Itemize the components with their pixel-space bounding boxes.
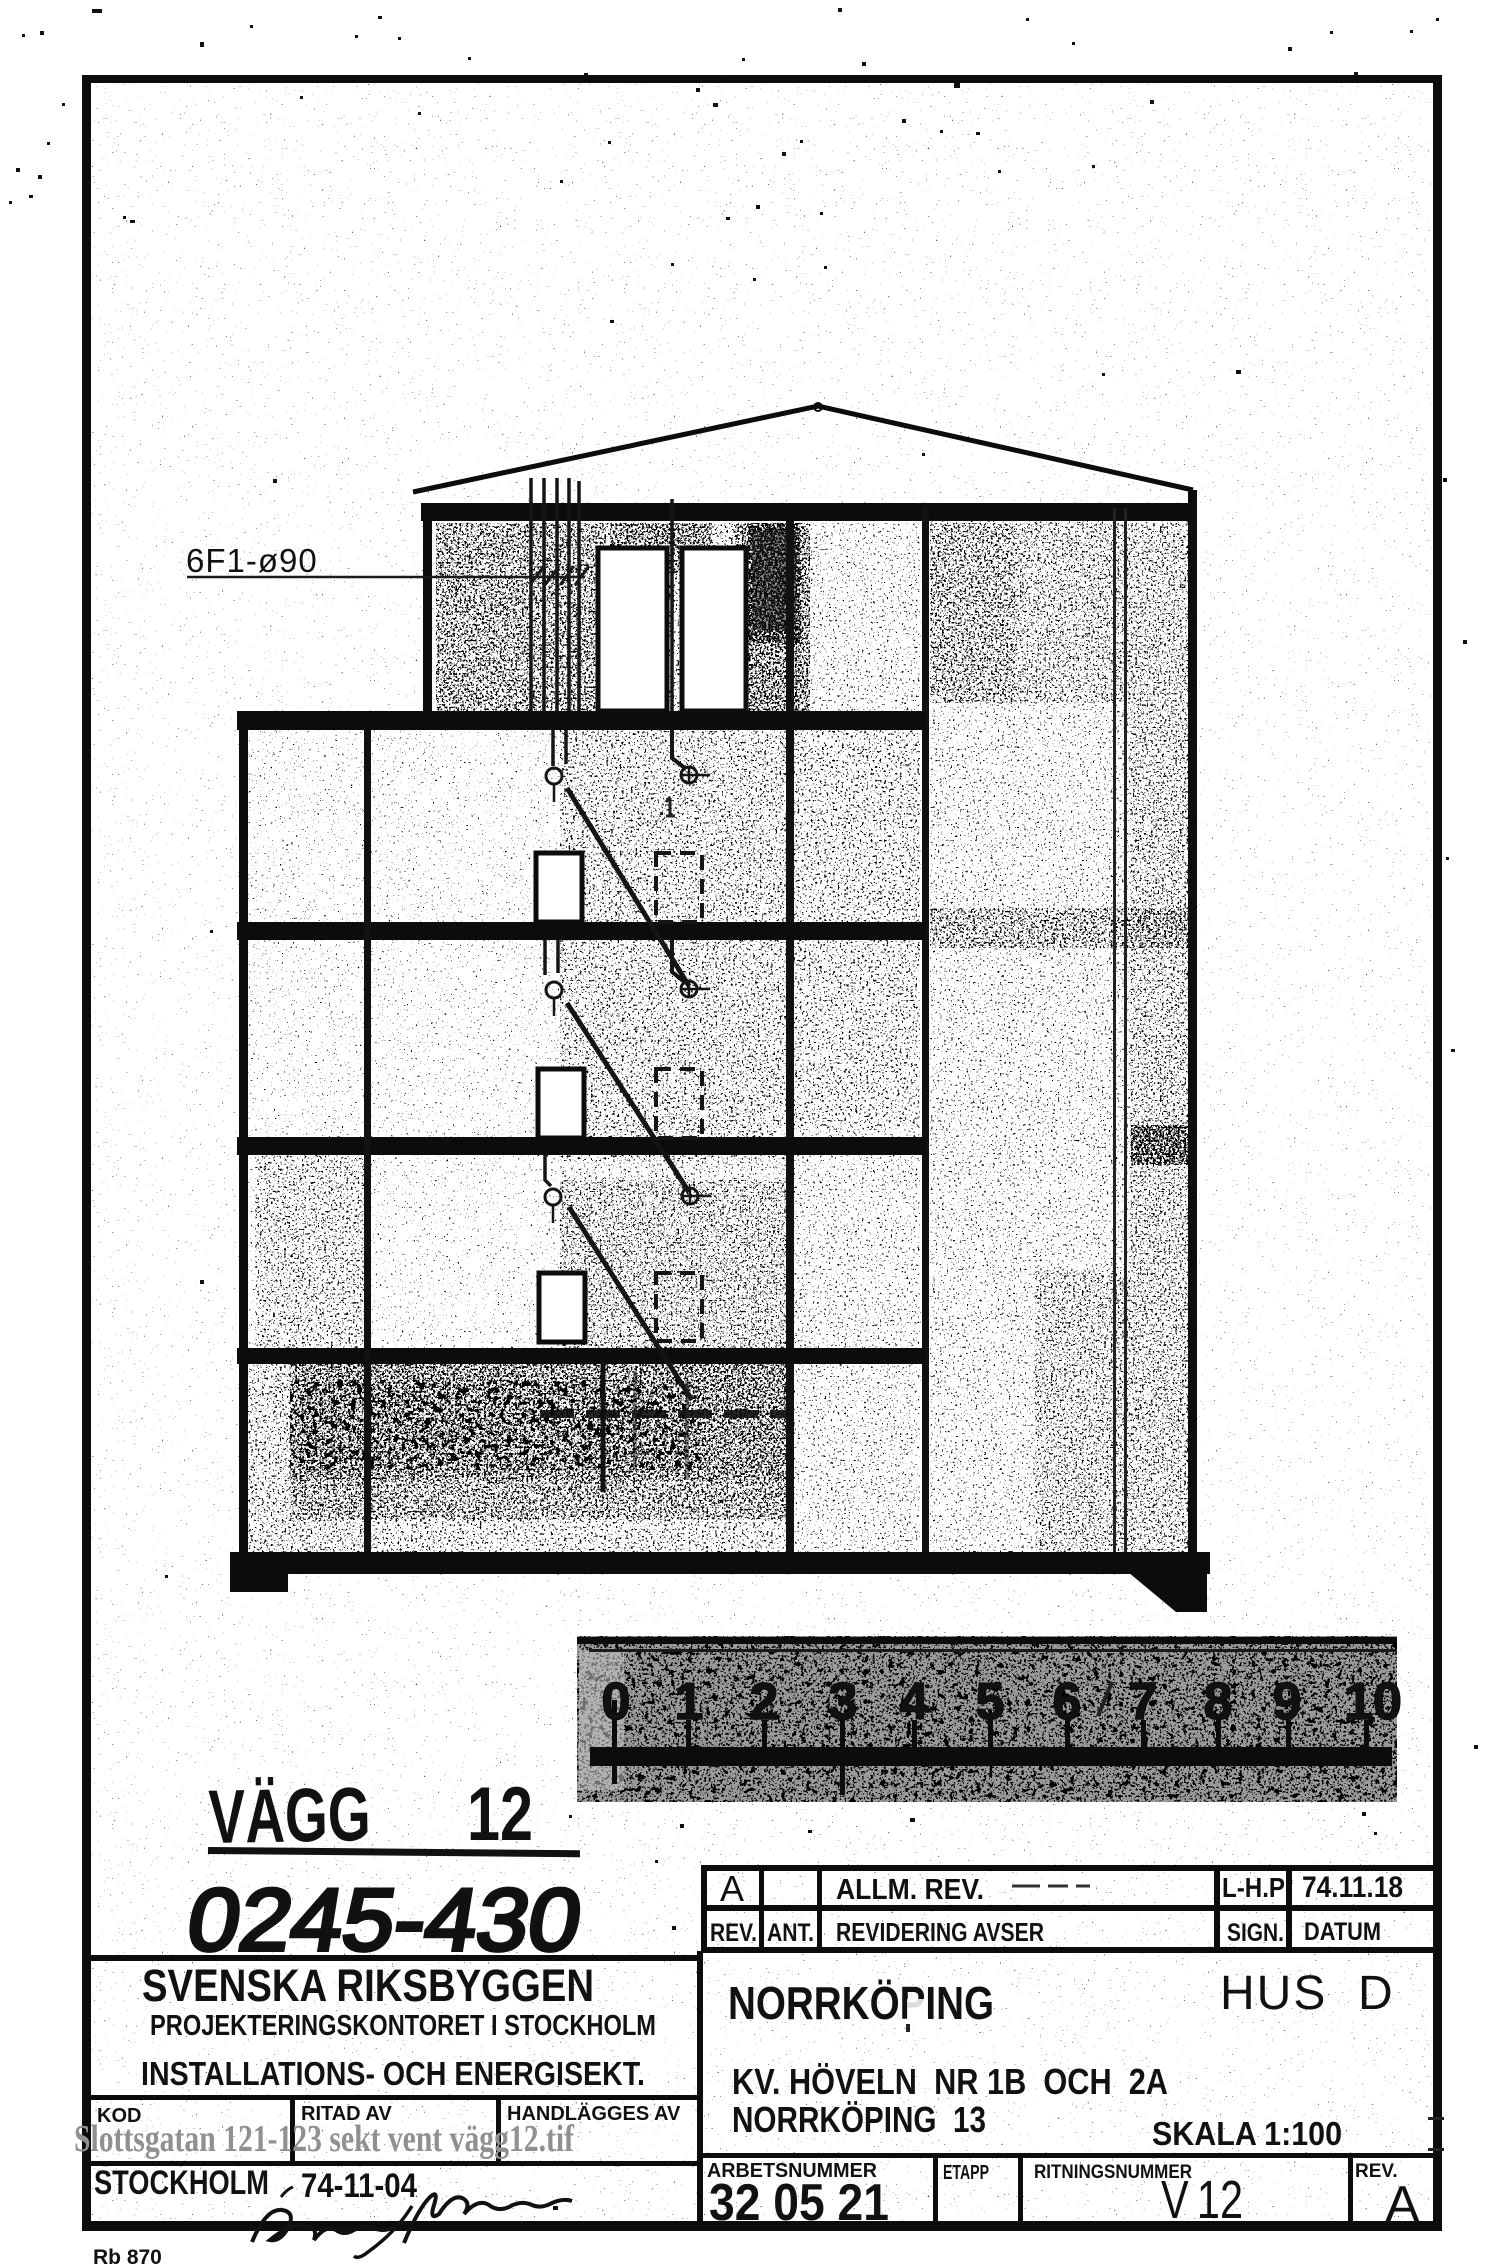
svg-text:ANT.: ANT. bbox=[767, 1919, 814, 1947]
svg-text:ALLM. REV.: ALLM. REV. bbox=[836, 1874, 984, 1906]
svg-text:7: 7 bbox=[1129, 1673, 1158, 1731]
svg-text:REVIDERING AVSER: REVIDERING AVSER bbox=[836, 1917, 1044, 1947]
svg-text:INSTALLATIONS- OCH ENERGISEKT.: INSTALLATIONS- OCH ENERGISEKT. bbox=[141, 2055, 645, 2092]
svg-text:PROJEKTERINGSKONTORET I STOCKH: PROJEKTERINGSKONTORET I STOCKHOLM bbox=[150, 2010, 656, 2042]
svg-text:9: 9 bbox=[1273, 1673, 1302, 1731]
svg-text:Rb 870: Rb 870 bbox=[93, 2246, 162, 2268]
svg-text:HUS D: HUS D bbox=[1220, 1967, 1395, 2020]
svg-text:0: 0 bbox=[602, 1673, 631, 1731]
svg-text:NORRKÖPING: NORRKÖPING bbox=[728, 1977, 994, 2029]
svg-text:STOCKHOLM: STOCKHOLM bbox=[94, 2164, 269, 2202]
svg-text:A: A bbox=[1385, 2176, 1420, 2234]
svg-text:5: 5 bbox=[976, 1673, 1005, 1731]
svg-text:74.11.18: 74.11.18 bbox=[1302, 1871, 1403, 1904]
svg-text:6: 6 bbox=[1053, 1673, 1082, 1731]
svg-text:VÄGG: VÄGG bbox=[208, 1772, 371, 1860]
svg-text:A: A bbox=[720, 1868, 744, 1909]
svg-text:6F1-ø90: 6F1-ø90 bbox=[186, 542, 318, 579]
svg-text:2: 2 bbox=[750, 1673, 779, 1731]
svg-text:3: 3 bbox=[829, 1673, 858, 1731]
svg-text:KV. HÖVELN NR 1B OCH 2A: KV. HÖVELN NR 1B OCH 2A bbox=[732, 2061, 1168, 2102]
svg-text:ETAPP: ETAPP bbox=[943, 2162, 989, 2184]
svg-text:0245-430: 0245-430 bbox=[181, 1870, 589, 1968]
svg-text:NORRKÖPING 13: NORRKÖPING 13 bbox=[732, 2099, 986, 2140]
svg-text:1: 1 bbox=[675, 1673, 704, 1731]
svg-text:V 12: V 12 bbox=[1161, 2170, 1243, 2230]
svg-text:12: 12 bbox=[467, 1772, 533, 1857]
svg-text:SVENSKA RIKSBYGGEN: SVENSKA RIKSBYGGEN bbox=[142, 1960, 594, 2011]
svg-text:REV.: REV. bbox=[710, 1919, 757, 1947]
svg-text:8: 8 bbox=[1204, 1673, 1233, 1731]
svg-text:L-H.P: L-H.P bbox=[1222, 1872, 1285, 1903]
svg-text:10: 10 bbox=[1344, 1673, 1402, 1731]
svg-text:74-11-04: 74-11-04 bbox=[301, 2167, 417, 2205]
svg-text:4: 4 bbox=[900, 1673, 929, 1731]
svg-text:DATUM: DATUM bbox=[1304, 1918, 1381, 1946]
svg-text:SIGN.: SIGN. bbox=[1227, 1919, 1284, 1947]
svg-text:Slottsgatan 121-123 sekt vent: Slottsgatan 121-123 sekt vent vägg12.tif bbox=[74, 2118, 575, 2160]
svg-text:32 05 21: 32 05 21 bbox=[709, 2174, 889, 2232]
svg-text:SKALA 1:100: SKALA 1:100 bbox=[1152, 2115, 1342, 2152]
